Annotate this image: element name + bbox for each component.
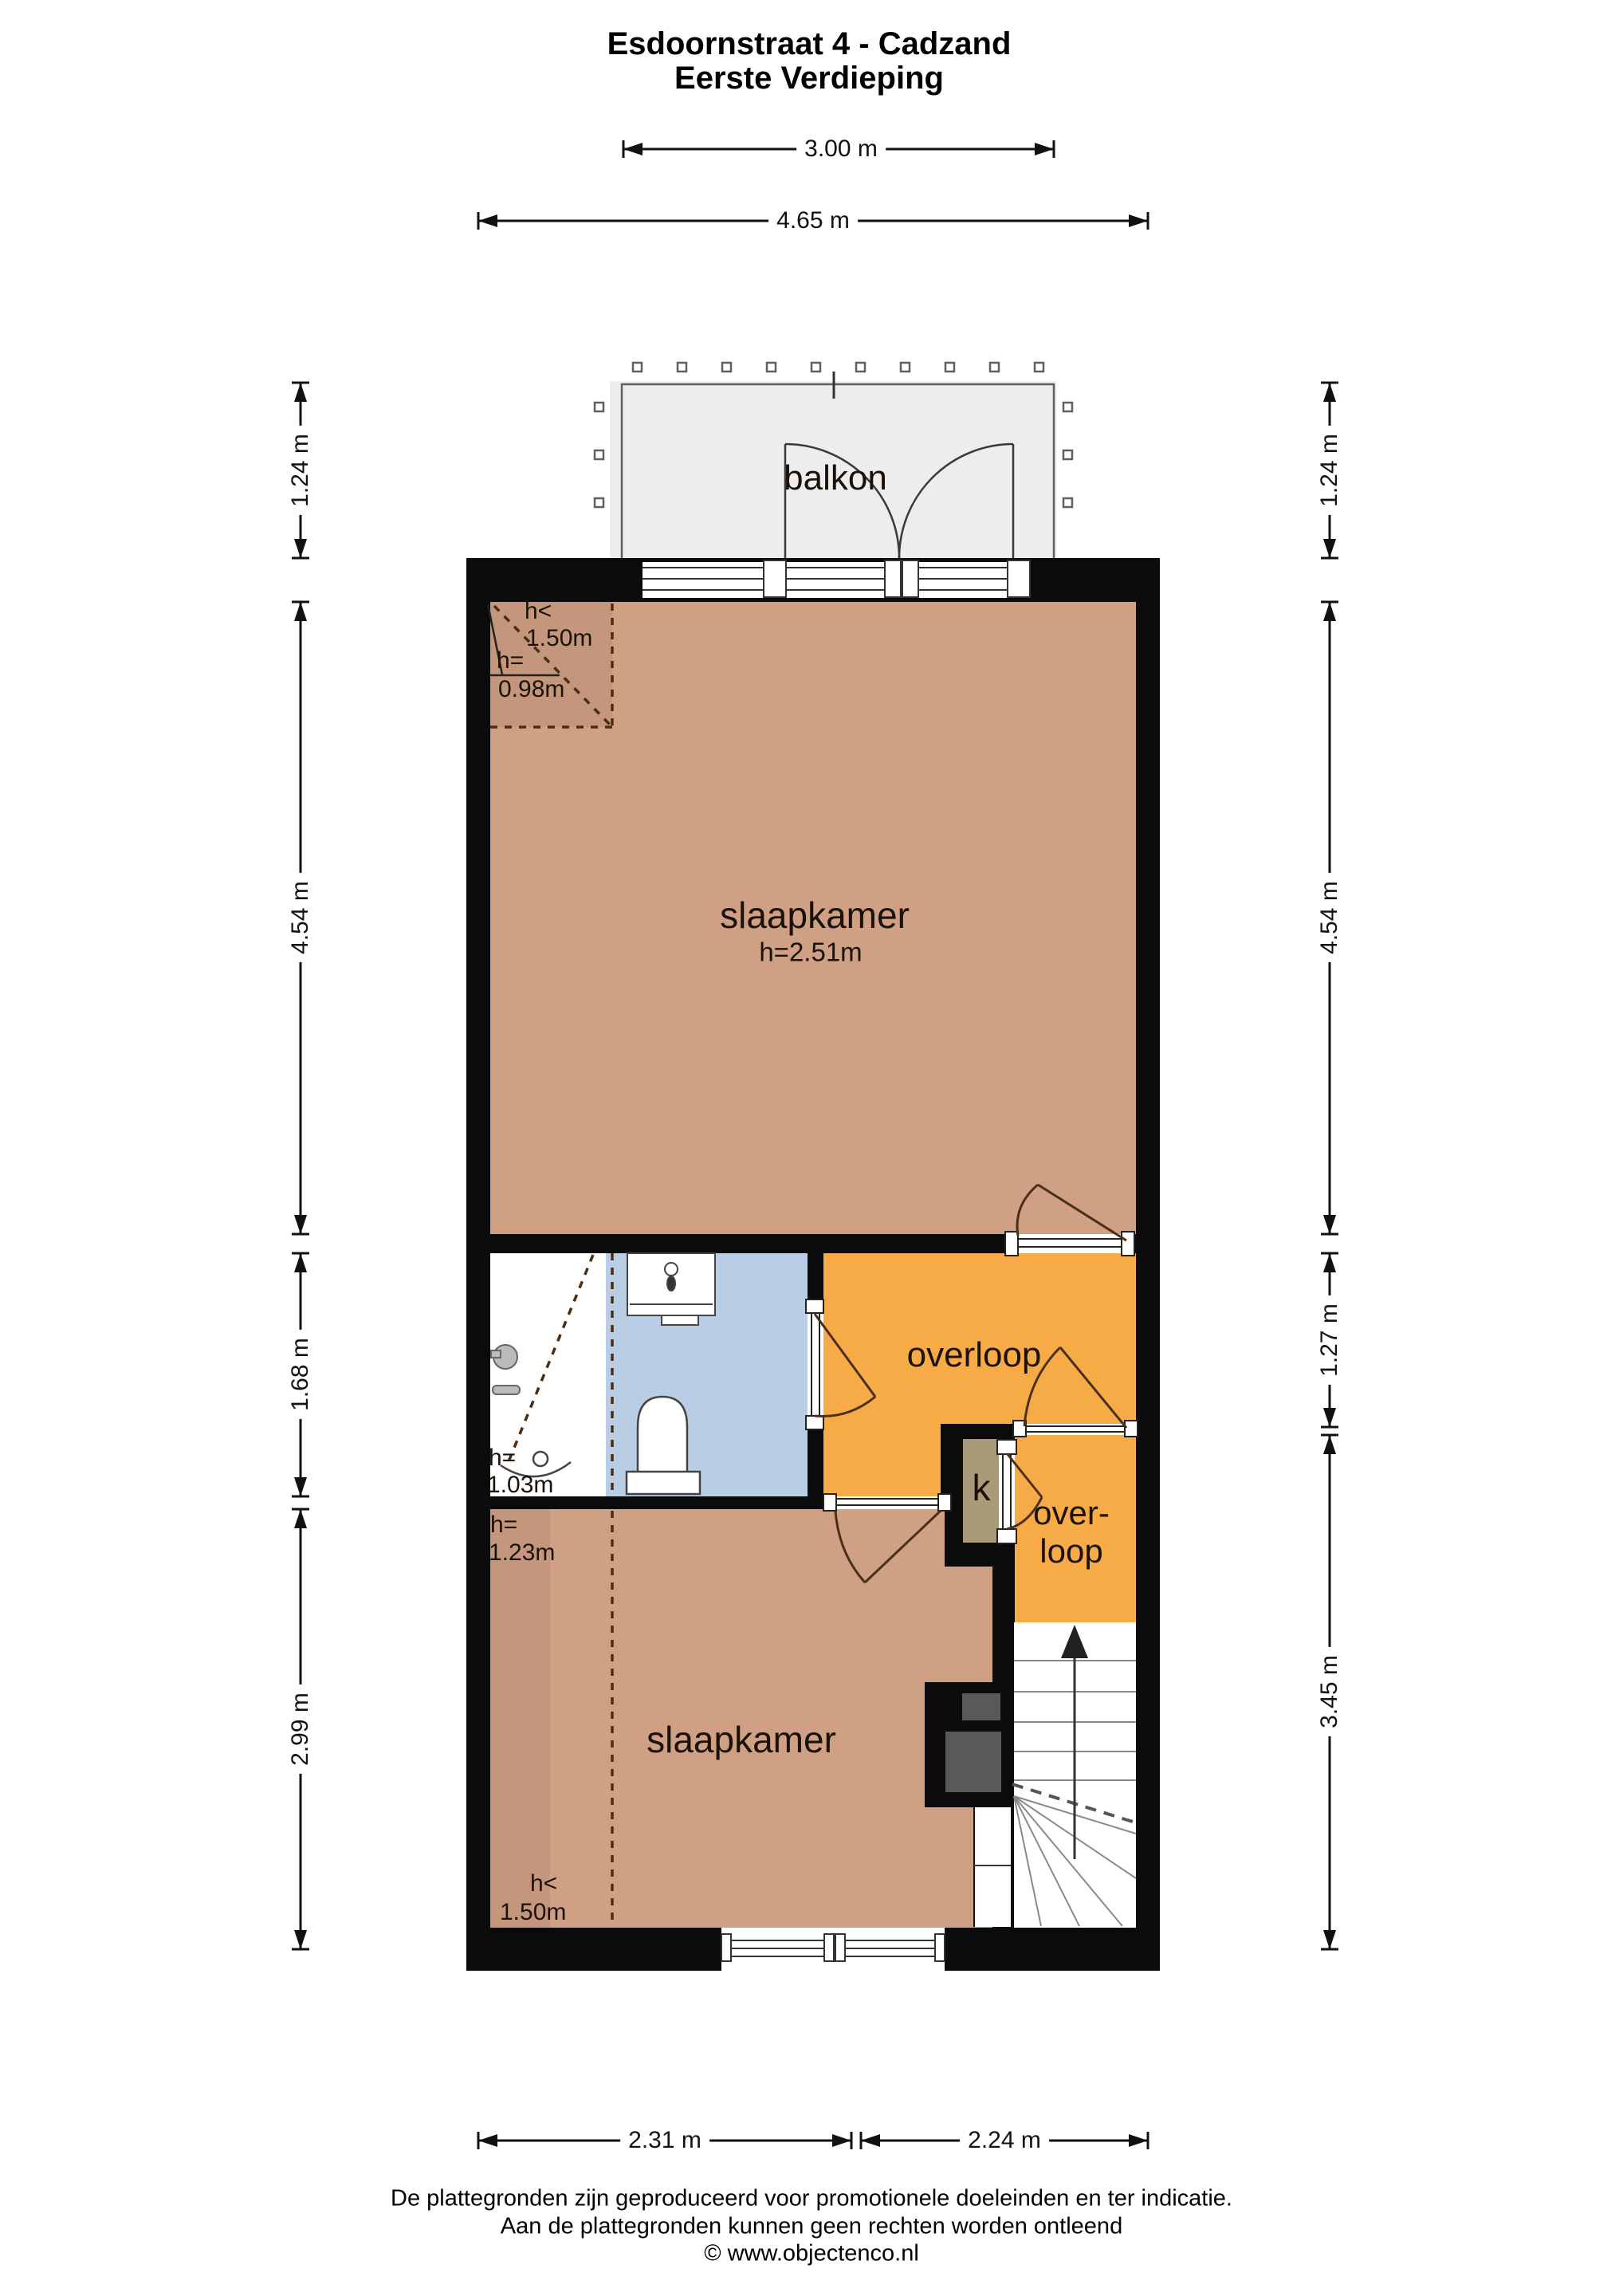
dim-left-balcony: 1.24 m [289,426,312,515]
floor-plan: Esdoornstraat 4 - Cadzand Eerste Verdiep… [0,0,1623,2296]
note-bath-103: 1.03m [487,1473,553,1497]
footer-disclaimer-line2: Aan de plattegronden kunnen geen rechten… [501,2215,1122,2239]
dim-left-bedroom1: 4.54 m [289,873,312,962]
label-landing2-line2: loop [1039,1535,1102,1568]
note-bed1-098: 0.98m [498,678,564,702]
label-bedroom1-height: h=2.51m [759,939,862,965]
shower-fixture-icon [491,1345,520,1394]
dim-right-stairs: 3.45 m [1318,1647,1342,1736]
note-bed2-150: 1.50m [500,1901,566,1924]
note-bed2-h-eq: h= [490,1513,517,1537]
dim-left-bedroom2: 2.99 m [289,1685,312,1774]
footer-disclaimer-line1: De plattegronden zijn geproduceerd voor … [391,2188,1232,2211]
dim-bottom-right: 2.24 m [960,2129,1049,2152]
dim-top-total: 4.65 m [768,209,858,233]
plan-linework [0,0,1623,2296]
plan-title-line1: Esdoornstraat 4 - Cadzand [607,28,1012,60]
dim-right-balcony: 1.24 m [1318,426,1342,515]
label-balcony: balkon [784,461,887,496]
dim-top-balcony: 3.00 m [796,137,886,161]
dimension-lines [292,140,1338,2149]
dim-bottom-left: 2.31 m [620,2129,709,2152]
note-bed1-h-lt: h< [525,600,552,623]
note-bath-h-eq: h= [489,1446,516,1470]
dim-left-bathroom: 1.68 m [289,1330,312,1419]
dim-right-bedroom1: 4.54 m [1318,873,1342,962]
label-landing2-line1: over- [1033,1496,1110,1530]
toilet-icon [627,1397,700,1494]
bottom-window-icon [721,1934,945,1961]
note-bed1-150: 1.50m [526,627,592,651]
footer-copyright: © www.objectenco.nl [704,2243,919,2266]
plan-title-line2: Eerste Verdieping [674,62,944,94]
dim-right-landing: 1.27 m [1318,1295,1342,1385]
note-bed1-h-eq: h= [497,649,524,673]
note-bed2-123: 1.23m [489,1541,555,1565]
note-bed2-h-lt: h< [530,1872,557,1896]
label-bedroom2: slaapkamer [646,1721,836,1758]
duct-shaft-icon [925,1682,1014,1807]
label-closet-k: k [973,1469,991,1506]
label-bedroom1: slaapkamer [720,897,910,934]
washbasin-icon [627,1253,715,1325]
label-landing: overloop [907,1338,1042,1373]
